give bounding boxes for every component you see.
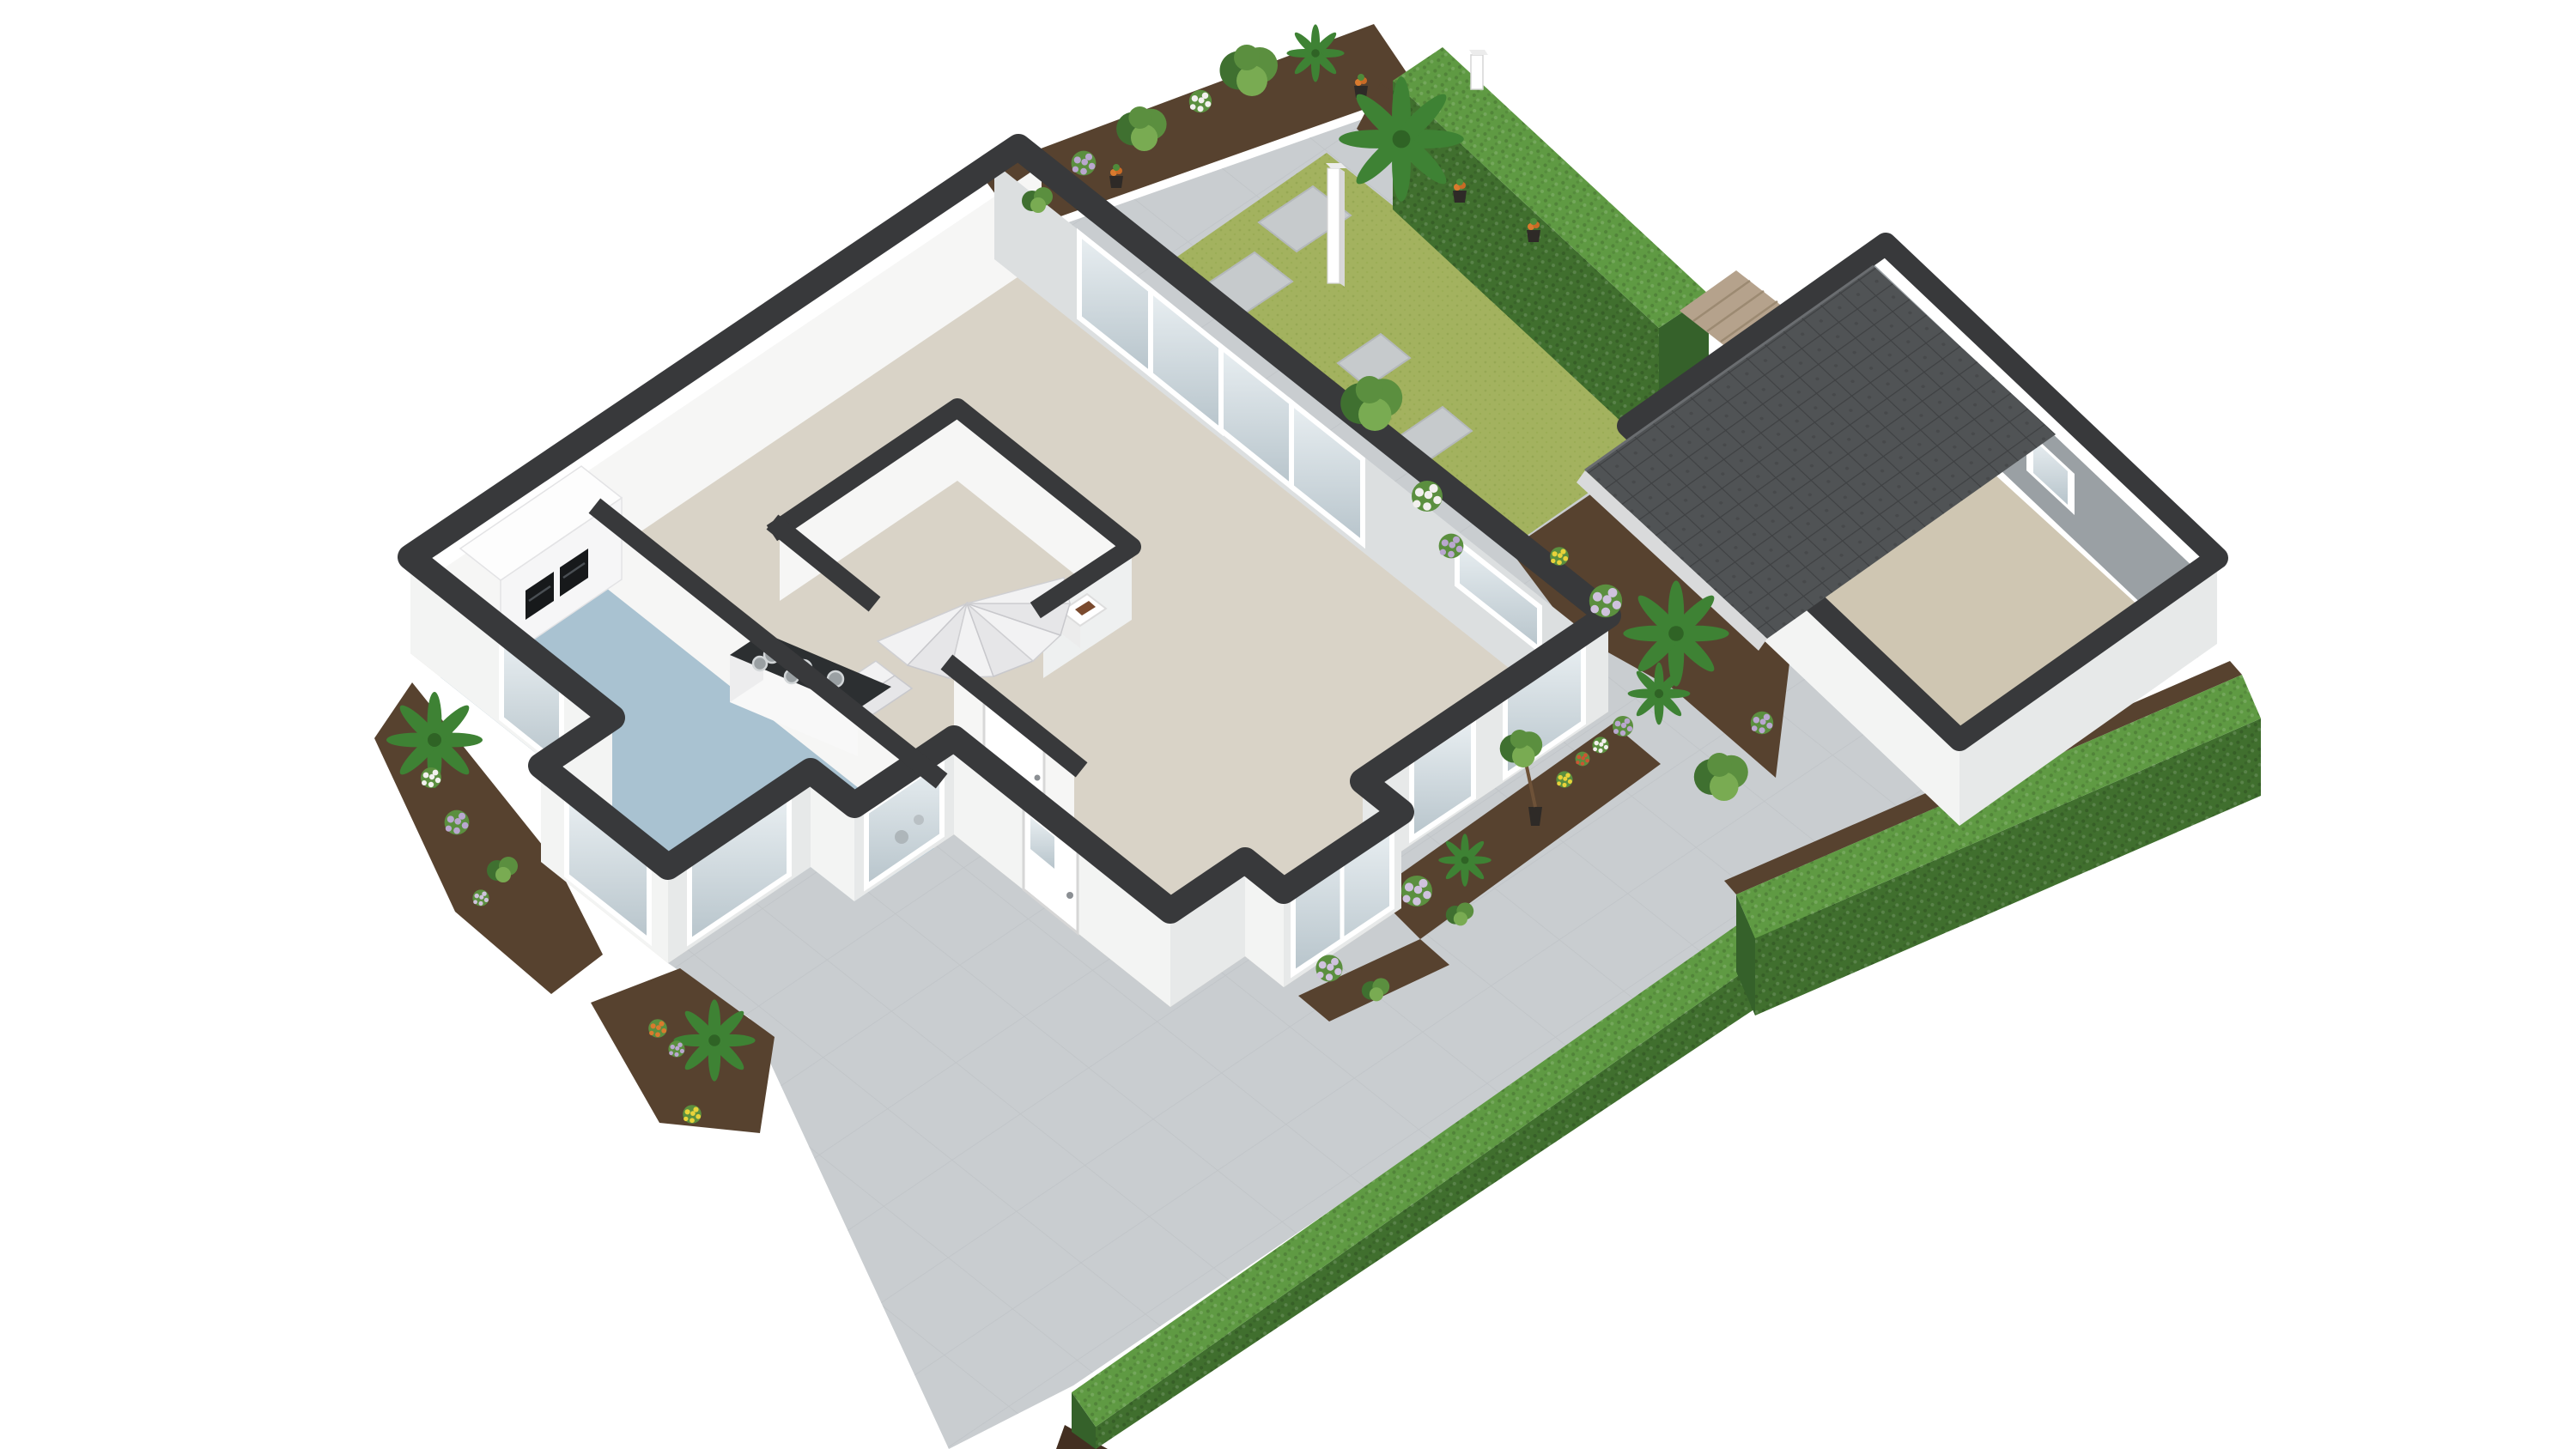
plant-purple-flowers: [1589, 585, 1622, 617]
plant-purple-flowers: [1401, 876, 1432, 906]
plant-purple-flowers: [1751, 712, 1773, 734]
floorplan-3d-render: [0, 0, 2576, 1449]
plant-palm: [1628, 663, 1691, 725]
plant-white-flowers: [1412, 481, 1443, 512]
plant-purple-flowers: [1315, 955, 1342, 981]
plant-palm: [1438, 834, 1492, 887]
plant-fan-palm: [1339, 76, 1464, 202]
plant-palm: [1286, 24, 1344, 82]
plant-white-flowers: [1592, 737, 1608, 753]
lamp-post-behind-hedge: [1469, 50, 1488, 89]
plant-purple-flowers: [445, 810, 470, 835]
lamp-post: [1326, 163, 1346, 287]
plant-palm: [673, 999, 755, 1081]
plant-red-flowers: [1576, 752, 1590, 767]
plant-purple-flowers: [1439, 534, 1464, 559]
plant-purple-flowers: [1072, 151, 1097, 176]
plant-yellow-flowers: [683, 1105, 702, 1124]
plant-white-flowers: [1189, 90, 1212, 112]
plant-white-flowers: [421, 767, 441, 788]
plant-purple-flowers: [1613, 716, 1633, 737]
plant-orange-flowers: [648, 1019, 667, 1038]
plant-yellow-flowers: [1556, 771, 1572, 787]
plant-purple-flowers: [668, 1040, 684, 1057]
plant-yellow-flowers: [1550, 547, 1569, 566]
plant-palm: [1623, 580, 1728, 686]
plant-purple-flowers: [472, 889, 489, 906]
